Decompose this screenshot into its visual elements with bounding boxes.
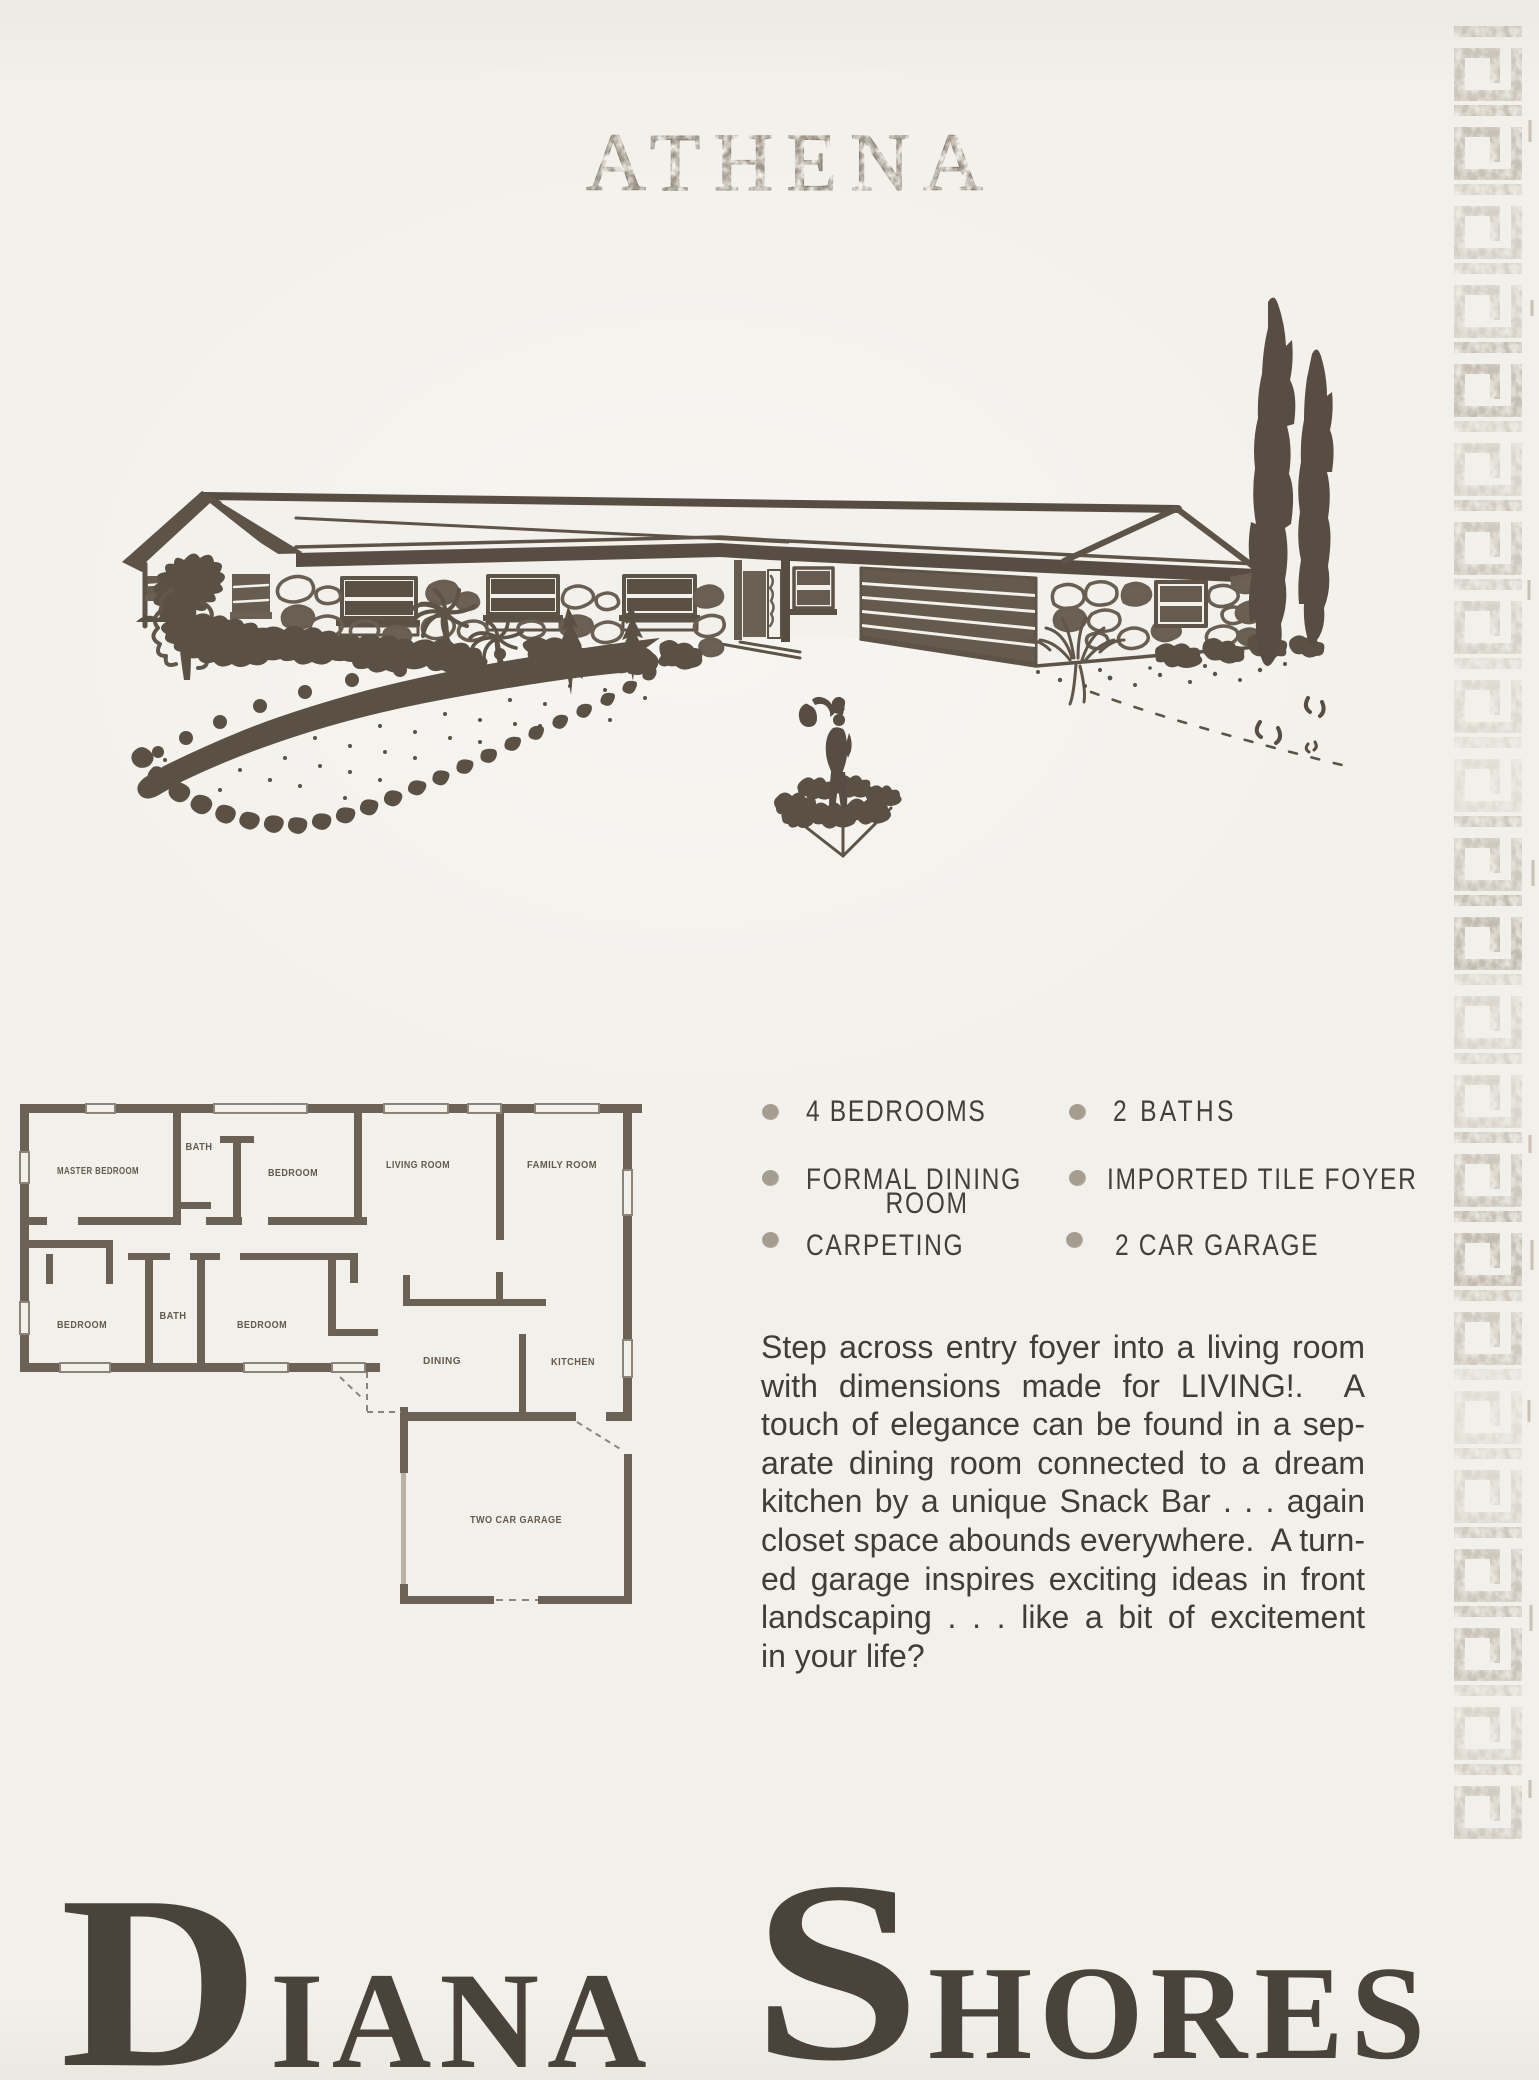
svg-text:TWO CAR GARAGE: TWO CAR GARAGE	[470, 1514, 562, 1526]
svg-text:DINING: DINING	[423, 1355, 461, 1367]
svg-text:KITCHEN: KITCHEN	[551, 1356, 595, 1368]
